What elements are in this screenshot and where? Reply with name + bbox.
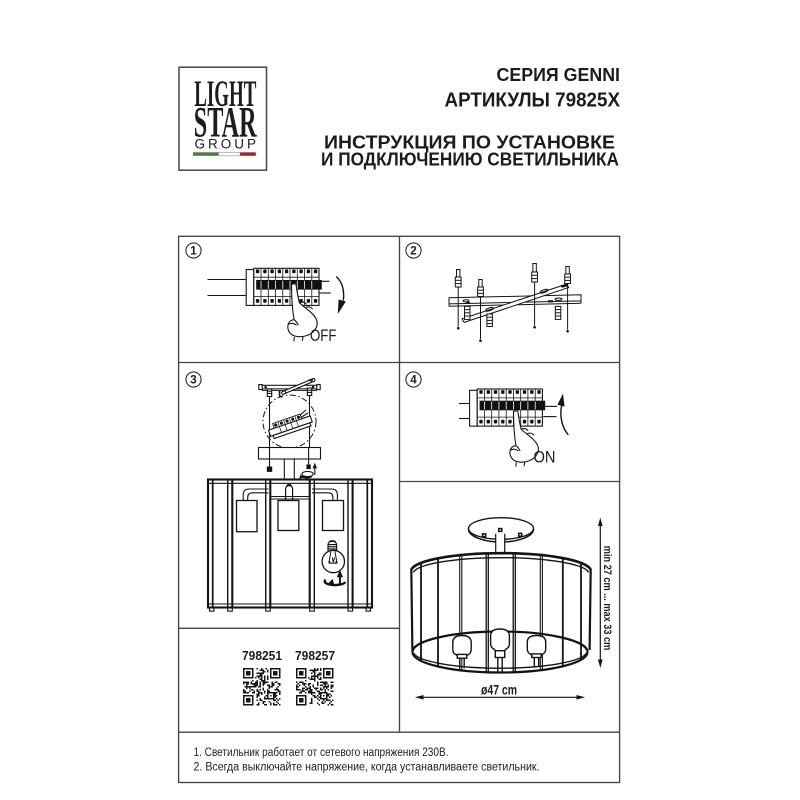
svg-text:2. Всегда выключайте напряжени: 2. Всегда выключайте напряжение, когда у…: [194, 762, 540, 774]
svg-text:798251: 798251: [242, 648, 282, 663]
svg-text:4: 4: [410, 375, 417, 387]
svg-text:3: 3: [190, 375, 196, 387]
svg-text:СЕРИЯ GENNI: СЕРИЯ GENNI: [497, 65, 621, 85]
svg-text:ON: ON: [534, 449, 556, 467]
svg-text:АРТИКУЛЫ 79825X: АРТИКУЛЫ 79825X: [445, 90, 621, 112]
svg-text:GROUP: GROUP: [195, 137, 257, 152]
svg-text:1: 1: [190, 246, 197, 258]
svg-text:798257: 798257: [295, 648, 335, 663]
svg-text:2: 2: [410, 246, 416, 258]
svg-text:И ПОДКЛЮЧЕНИЮ СВЕТИЛЬНИКА: И ПОДКЛЮЧЕНИЮ СВЕТИЛЬНИКА: [321, 149, 619, 170]
svg-text:OFF: OFF: [310, 327, 337, 345]
svg-text:min 27 cm ... max 33 cm: min 27 cm ... max 33 cm: [601, 546, 613, 651]
svg-text:1. Светильник работает от сете: 1. Светильник работает от сетевого напря…: [194, 747, 449, 759]
svg-text:ø47 cm: ø47 cm: [481, 683, 517, 698]
